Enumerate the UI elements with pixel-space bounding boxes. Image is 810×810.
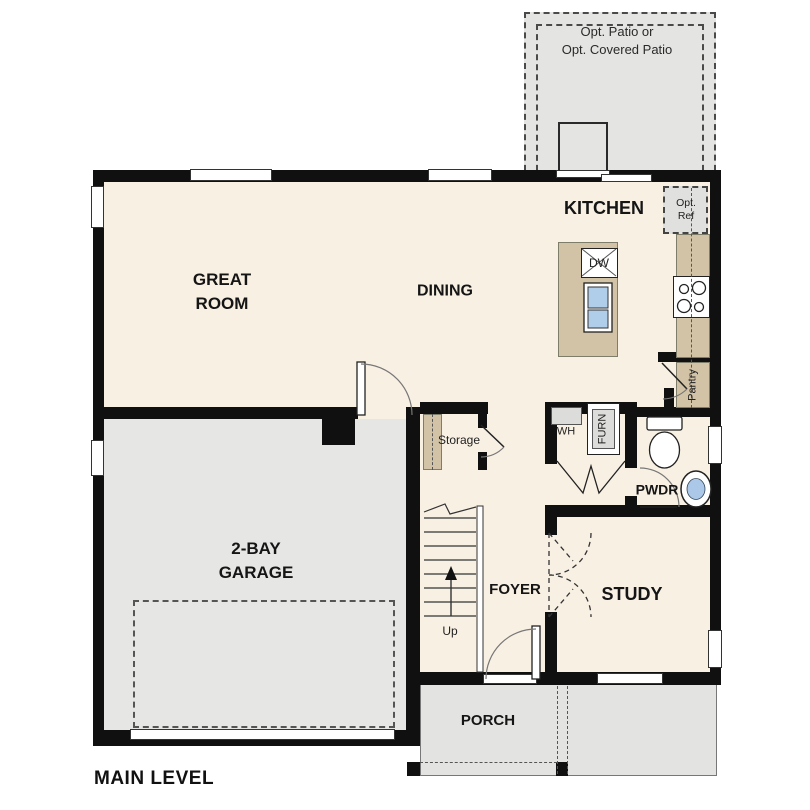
room-label-study: STUDY xyxy=(601,584,662,606)
wall-storage-right-lower xyxy=(478,452,487,470)
porch-post-left xyxy=(407,762,420,776)
sliding-door-panel-2 xyxy=(601,174,652,182)
window-study-right xyxy=(708,630,722,668)
water-heater-box xyxy=(551,407,582,425)
garage-overhead-door xyxy=(130,729,395,740)
plan-title: MAIN LEVEL xyxy=(94,768,214,790)
garage-option-dashed xyxy=(133,600,395,728)
wall-garage-notch xyxy=(322,419,355,445)
label-stairs-up: Up xyxy=(442,624,457,638)
label-pantry: Pantry xyxy=(686,369,699,401)
room-label-kitchen: KITCHEN xyxy=(564,198,644,220)
porch-dash-v2 xyxy=(567,686,568,774)
wall-greatroom-garage xyxy=(93,407,358,419)
room-label-porch: PORCH xyxy=(461,712,515,730)
label-opt-ref: Opt. Ref xyxy=(676,197,696,223)
room-label-powder: PWDR xyxy=(636,482,679,499)
wall-storage-right-upper xyxy=(478,402,487,428)
wall-study-left-upper xyxy=(545,517,557,535)
room-label-garage: 2-BAY GARAGE xyxy=(219,537,294,585)
front-door-opening xyxy=(483,674,537,684)
room-label-great-room: GREAT ROOM xyxy=(193,268,251,316)
window-study-bottom xyxy=(597,673,663,684)
label-storage: Storage xyxy=(438,433,480,447)
label-water-heater: WH xyxy=(557,425,575,438)
label-dishwasher: DW xyxy=(589,256,609,270)
porch-dash-h xyxy=(420,762,557,763)
wall-study-top xyxy=(545,505,710,517)
window-powder-right xyxy=(708,426,722,464)
label-furnace: FURN xyxy=(596,414,609,445)
window-greatroom-left xyxy=(91,186,104,228)
wall-garage-foyer xyxy=(406,407,420,746)
room-label-dining: DINING xyxy=(417,281,473,300)
wall-study-left-lower xyxy=(545,612,557,685)
storage-shelf-centerline xyxy=(432,414,433,470)
wall-pantry-left-stub xyxy=(664,388,674,417)
window-garage-left xyxy=(91,440,104,476)
porch-dash-v1 xyxy=(557,686,558,774)
floor-plan: Opt. Patio or Opt. Covered Patio GREAT R… xyxy=(0,0,810,810)
patio-label: Opt. Patio or Opt. Covered Patio xyxy=(562,23,673,59)
wall-closet-right xyxy=(625,402,637,468)
window-dining-top xyxy=(428,169,492,181)
wall-house-bottom xyxy=(406,672,721,685)
room-label-foyer: FOYER xyxy=(489,581,541,599)
window-greatroom-top-1 xyxy=(190,169,272,181)
patio-landing xyxy=(558,122,608,172)
